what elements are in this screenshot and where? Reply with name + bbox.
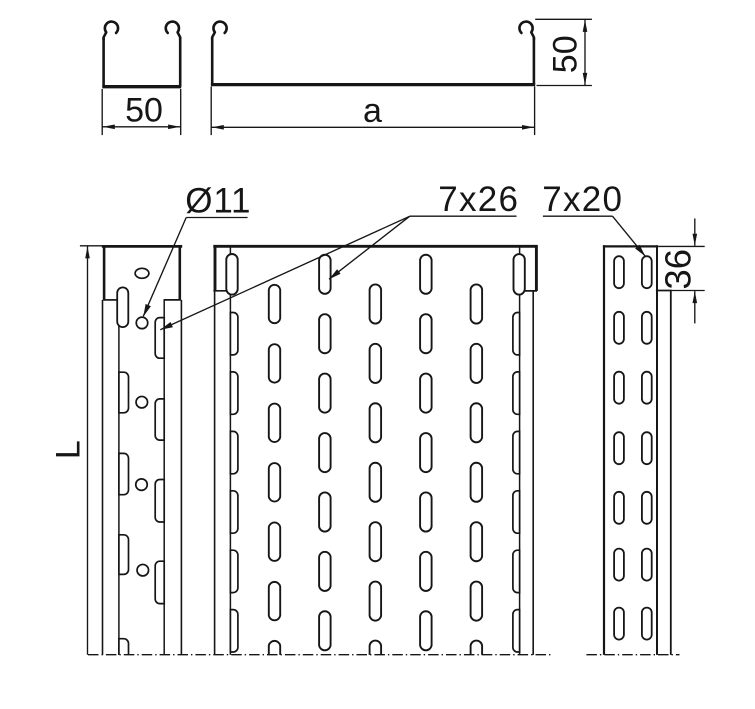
svg-text:Ø11: Ø11 <box>185 181 251 220</box>
svg-text:7x20: 7x20 <box>542 180 623 219</box>
svg-text:a: a <box>363 92 382 130</box>
svg-text:7x26: 7x26 <box>438 180 519 219</box>
svg-text:L: L <box>50 440 88 459</box>
svg-text:50: 50 <box>546 35 584 73</box>
svg-text:50: 50 <box>125 91 163 129</box>
svg-text:36: 36 <box>658 249 699 290</box>
